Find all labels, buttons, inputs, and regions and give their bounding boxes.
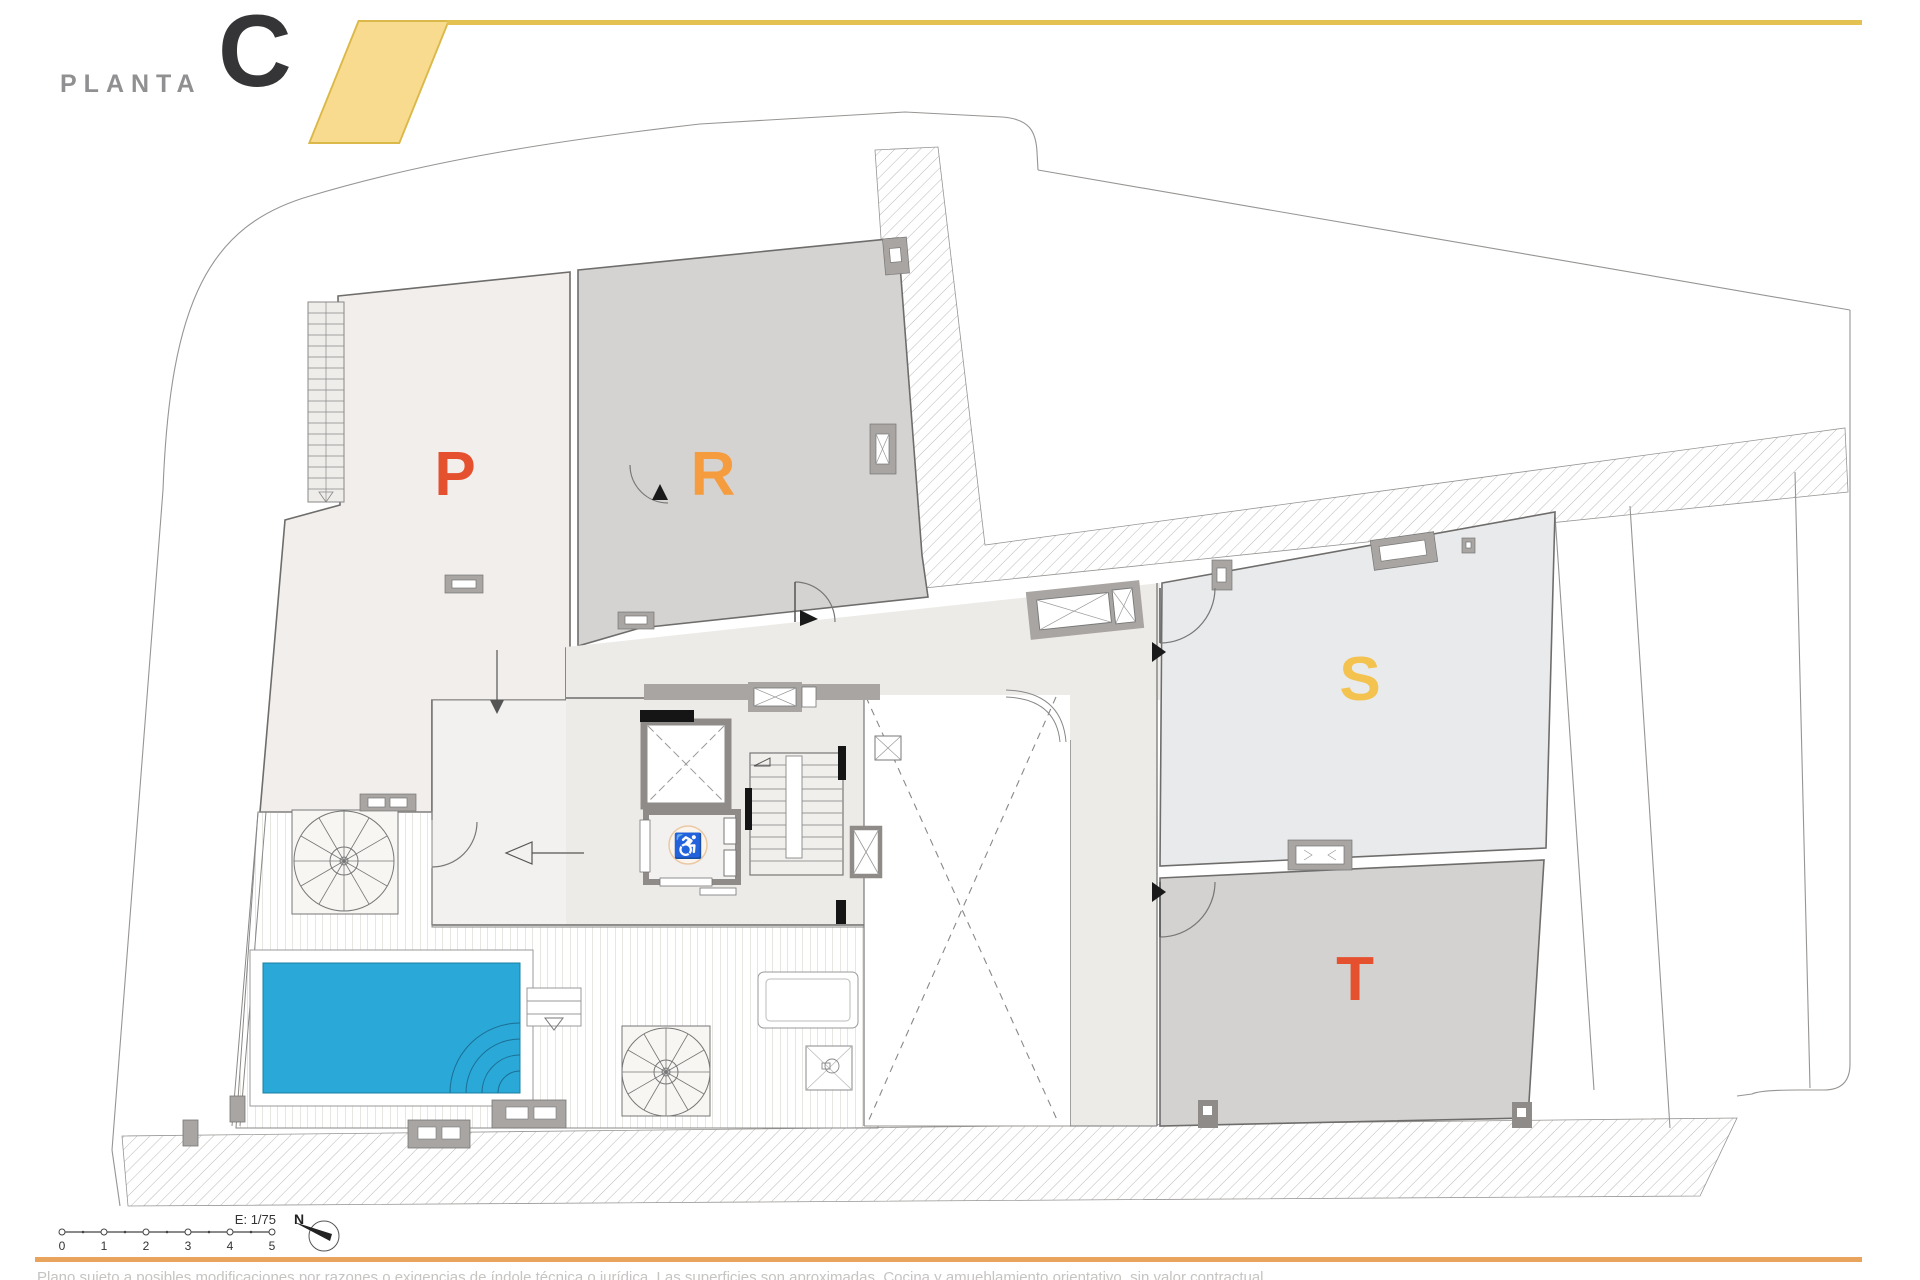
scale-label: E: 1/75	[235, 1212, 276, 1227]
void-shaft-box	[875, 736, 901, 760]
scale-tick-4: 4	[227, 1239, 234, 1253]
elevator-shaft	[644, 722, 728, 806]
pool-side-steps	[527, 988, 581, 1030]
accessible-elevator: ♿	[640, 812, 738, 895]
unit-s-label: S	[1339, 645, 1380, 714]
footer-disclaimer: Plano sujeto a posibles modificaciones p…	[37, 1269, 1268, 1280]
footer-orange-line	[35, 1257, 1862, 1262]
scale-tick-3: 3	[185, 1239, 192, 1253]
deck-vent-box	[408, 1120, 470, 1148]
southwest-pillar	[183, 1120, 198, 1146]
core-lintel-black	[640, 710, 694, 722]
scale-tick-2: 2	[143, 1239, 150, 1253]
unit-t-label: T	[1336, 945, 1374, 1014]
pool-water	[263, 963, 520, 1093]
st-divider-vent	[1288, 840, 1352, 870]
small-shaft	[852, 828, 880, 876]
page: PLANTA C	[0, 0, 1920, 1280]
scale-tick-0: 0	[59, 1239, 66, 1253]
scale-tick-1: 1	[101, 1239, 108, 1253]
outdoor-shower	[806, 1046, 852, 1090]
scale-bar: 0 1 2 3 4 5 E: 1/75	[59, 1212, 276, 1253]
west-pillar	[230, 1096, 245, 1122]
unit-r-label: R	[691, 440, 736, 509]
north-arrow-icon: N	[294, 1211, 339, 1251]
floor-plan: ♿	[0, 0, 1920, 1280]
hatch-top-band	[875, 147, 1848, 590]
pool-skimmer-box	[492, 1100, 566, 1128]
planter	[758, 972, 858, 1028]
pool	[250, 950, 533, 1106]
unit-p-label: P	[434, 440, 475, 509]
wheelchair-icon: ♿	[673, 832, 703, 860]
spiral-stair-west	[292, 810, 398, 914]
north-label: N	[294, 1211, 304, 1227]
hatch-sidewalk-band	[122, 1118, 1737, 1206]
lightwell-void	[864, 690, 1070, 1126]
spiral-stair-south	[622, 1026, 710, 1116]
terrace-stair-strip	[308, 302, 344, 502]
stairwell	[750, 753, 843, 875]
scale-tick-5: 5	[269, 1239, 276, 1253]
